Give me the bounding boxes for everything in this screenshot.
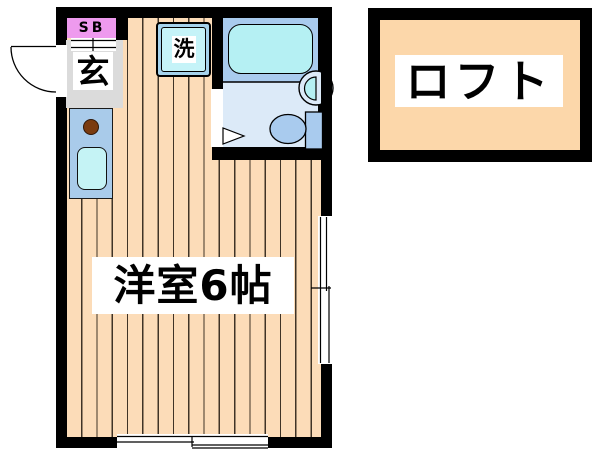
wall-stub	[116, 18, 128, 40]
washer-label-text: 洗	[174, 39, 195, 60]
shoe-box-window	[71, 38, 116, 51]
entrance-door-arc-icon	[11, 47, 56, 93]
loft-label: ロフト	[395, 55, 563, 107]
shoe-box-label: SB	[79, 20, 106, 36]
right-window-gap	[318, 216, 332, 364]
entrance-door-gap	[56, 45, 67, 97]
stove-burner-icon	[83, 119, 99, 135]
bathtub-shape	[228, 24, 313, 74]
floor-plan-canvas: SB 玄 洗 洋室6帖 ロフト	[0, 0, 600, 456]
genkan-label-text: 玄	[77, 55, 110, 88]
loft-label-text: ロフト	[405, 59, 552, 104]
room-label: 洋室6帖	[92, 257, 294, 314]
shoe-box: SB	[67, 18, 117, 38]
kitchen-sink	[77, 147, 107, 190]
bathroom-floor-section	[223, 82, 318, 147]
bathroom-door-gap	[211, 89, 223, 147]
room-label-text: 洋室6帖	[113, 265, 272, 307]
washer-label: 洗	[172, 36, 196, 63]
genkan-label: 玄	[73, 52, 113, 90]
bottom-window-gap	[117, 434, 268, 448]
